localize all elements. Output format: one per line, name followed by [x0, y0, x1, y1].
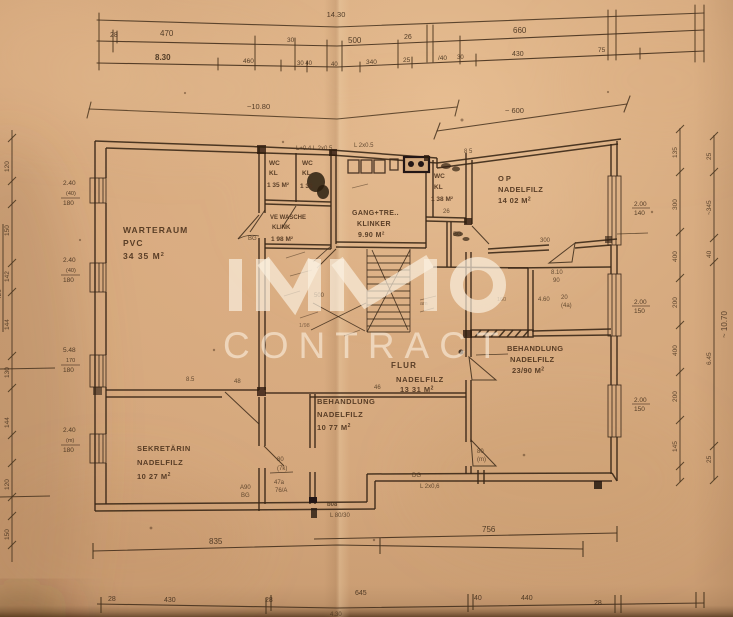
svg-text:KLINK: KLINK [272, 225, 291, 231]
svg-text:13 31 M2: 13 31 M2 [400, 385, 434, 394]
svg-text:OP: OP [498, 174, 513, 183]
svg-text:A90: A90 [240, 485, 251, 491]
svg-text:460: 460 [243, 58, 254, 65]
svg-text:34 35 M2: 34 35 M2 [123, 251, 165, 261]
svg-text:430: 430 [164, 597, 176, 604]
svg-text:(40): (40) [66, 268, 76, 274]
svg-text:400: 400 [672, 345, 679, 356]
svg-text:L 80/30: L 80/30 [330, 513, 350, 519]
svg-text:180: 180 [63, 277, 74, 284]
svg-text:145: 145 [672, 441, 679, 452]
svg-text:8 5: 8 5 [464, 149, 473, 155]
svg-text:8.5: 8.5 [186, 377, 195, 383]
svg-text:~ 600: ~ 600 [505, 106, 524, 115]
svg-text:WARTERAUM: WARTERAUM [123, 225, 188, 235]
svg-text:2.00: 2.00 [634, 299, 647, 306]
svg-text:300: 300 [540, 238, 551, 244]
svg-text:~345: ~345 [706, 200, 713, 215]
svg-text:47a: 47a [274, 480, 285, 486]
svg-text:KL: KL [434, 184, 443, 191]
svg-text:130: 130 [4, 367, 11, 378]
svg-text:1 35 M2: 1 35 M2 [267, 181, 290, 189]
svg-text:10 77 M2: 10 77 M2 [317, 423, 351, 432]
svg-text:BEHANDLUNG: BEHANDLUNG [317, 397, 375, 406]
svg-text:(m): (m) [66, 438, 74, 444]
svg-text:28: 28 [265, 597, 273, 604]
svg-text:340: 340 [366, 59, 377, 66]
svg-text:8.30: 8.30 [155, 53, 171, 62]
svg-text:KL: KL [302, 170, 311, 177]
svg-text:8.10: 8.10 [551, 270, 563, 276]
svg-text:430: 430 [512, 51, 524, 58]
svg-text:835: 835 [209, 537, 223, 546]
svg-text:2.40: 2.40 [63, 180, 76, 187]
svg-text:26: 26 [443, 209, 450, 215]
svg-text:KLINKER: KLINKER [357, 221, 391, 228]
svg-text:BG: BG [453, 232, 462, 238]
svg-text:48: 48 [234, 379, 241, 385]
svg-text:14.30: 14.30 [327, 10, 346, 19]
svg-text:25: 25 [706, 152, 713, 160]
svg-text:80: 80 [277, 457, 284, 463]
svg-text:40: 40 [331, 62, 338, 68]
svg-text:26: 26 [404, 34, 412, 41]
svg-text:BG: BG [248, 236, 257, 242]
svg-text:30: 30 [287, 37, 295, 44]
svg-text:150: 150 [634, 406, 645, 413]
svg-text:180: 180 [63, 367, 74, 374]
svg-text:120: 120 [4, 161, 11, 172]
svg-text:b08: b08 [327, 502, 338, 508]
svg-text:28: 28 [110, 32, 118, 39]
svg-text:420: 420 [0, 289, 3, 300]
svg-text:~10.80: ~10.80 [247, 102, 270, 111]
svg-text:~ 10.70: ~ 10.70 [720, 311, 729, 338]
svg-text:25: 25 [403, 57, 411, 64]
svg-text:40: 40 [706, 250, 713, 258]
svg-text:2.40: 2.40 [63, 427, 76, 434]
svg-text:10 27 M2: 10 27 M2 [137, 472, 171, 481]
svg-text:645: 645 [355, 590, 367, 597]
svg-text:75: 75 [598, 47, 606, 54]
svg-text:1 38 M2: 1 38 M2 [431, 195, 454, 203]
svg-text:CONTRACT: CONTRACT [223, 325, 509, 366]
svg-text:VE WASCHE: VE WASCHE [270, 215, 306, 221]
svg-text:BEHANDLUNG: BEHANDLUNG [507, 344, 563, 353]
svg-text:(m): (m) [477, 457, 486, 463]
svg-text:25: 25 [706, 455, 713, 463]
svg-text:180: 180 [63, 447, 74, 454]
svg-text:142: 142 [4, 271, 11, 282]
svg-text:4.60: 4.60 [538, 297, 550, 303]
svg-text:KL: KL [269, 170, 278, 177]
svg-text:500: 500 [348, 36, 362, 45]
svg-text:(4a): (4a) [561, 303, 572, 309]
svg-text:1 35: 1 35 [300, 183, 313, 190]
svg-text:46: 46 [374, 385, 381, 391]
svg-text:470: 470 [160, 29, 174, 38]
svg-text:28: 28 [108, 596, 116, 603]
svg-text:PVC: PVC [123, 238, 143, 248]
svg-text:144: 144 [4, 417, 11, 428]
svg-text:WC: WC [434, 173, 445, 180]
svg-text:120: 120 [4, 479, 11, 490]
svg-text:NADELFILZ: NADELFILZ [317, 410, 363, 419]
svg-text:756: 756 [482, 525, 496, 534]
svg-text:9.90 M2: 9.90 M2 [358, 231, 385, 240]
svg-text:440: 440 [521, 595, 533, 602]
svg-text:SEKRETÄRIN: SEKRETÄRIN [137, 444, 191, 453]
svg-text:14 02 M2: 14 02 M2 [498, 196, 531, 205]
svg-text:DG: DG [412, 473, 421, 479]
svg-text:4.30: 4.30 [330, 612, 342, 617]
svg-text:90: 90 [553, 278, 560, 284]
svg-text:1 98 M2: 1 98 M2 [271, 235, 294, 243]
svg-text:200: 200 [672, 297, 679, 308]
svg-text:150: 150 [634, 308, 645, 315]
svg-text:WC: WC [269, 160, 280, 167]
svg-text:2.00: 2.00 [634, 397, 647, 404]
svg-text:400: 400 [672, 251, 679, 262]
svg-text:5.48: 5.48 [63, 347, 76, 354]
svg-text:40: 40 [474, 595, 482, 602]
svg-text:L 2x0,6: L 2x0,6 [420, 484, 440, 490]
svg-text:180: 180 [63, 200, 74, 207]
svg-text:NADELFILZ: NADELFILZ [510, 355, 554, 364]
svg-text:WC: WC [302, 160, 313, 167]
svg-text:BG: BG [241, 493, 250, 499]
svg-text:(40): (40) [66, 191, 76, 197]
svg-text:L+0.4 L 2x0.5: L+0.4 L 2x0.5 [296, 146, 333, 152]
svg-text:300: 300 [672, 199, 679, 210]
svg-text:30 40: 30 40 [297, 61, 313, 67]
svg-text:2.40: 2.40 [63, 257, 76, 264]
svg-text:6.45: 6.45 [706, 352, 713, 365]
svg-text:660: 660 [513, 26, 527, 35]
svg-text:76/A: 76/A [275, 488, 287, 494]
svg-text:(7k): (7k) [277, 466, 287, 472]
svg-text:150: 150 [4, 225, 11, 236]
svg-text:140: 140 [634, 210, 645, 217]
svg-text:/40: /40 [438, 55, 447, 62]
svg-text:23/90 M2: 23/90 M2 [512, 366, 544, 375]
svg-text:NADELFILZ: NADELFILZ [498, 185, 543, 194]
svg-text:2.00: 2.00 [634, 201, 647, 208]
svg-text:135: 135 [672, 147, 679, 158]
svg-text:150: 150 [4, 529, 11, 540]
svg-text:L 2x0.5: L 2x0.5 [354, 143, 374, 149]
svg-text:GANG+TRE..: GANG+TRE.. [352, 210, 399, 217]
svg-text:NADELFILZ: NADELFILZ [137, 458, 183, 467]
svg-text:144: 144 [4, 319, 11, 330]
svg-text:NADELFILZ: NADELFILZ [396, 375, 444, 384]
svg-text:20: 20 [561, 295, 568, 301]
svg-text:170: 170 [66, 358, 75, 364]
svg-text:80: 80 [477, 449, 484, 455]
svg-text:200: 200 [672, 391, 679, 402]
svg-text:28: 28 [594, 600, 602, 607]
svg-text:30: 30 [457, 55, 464, 61]
